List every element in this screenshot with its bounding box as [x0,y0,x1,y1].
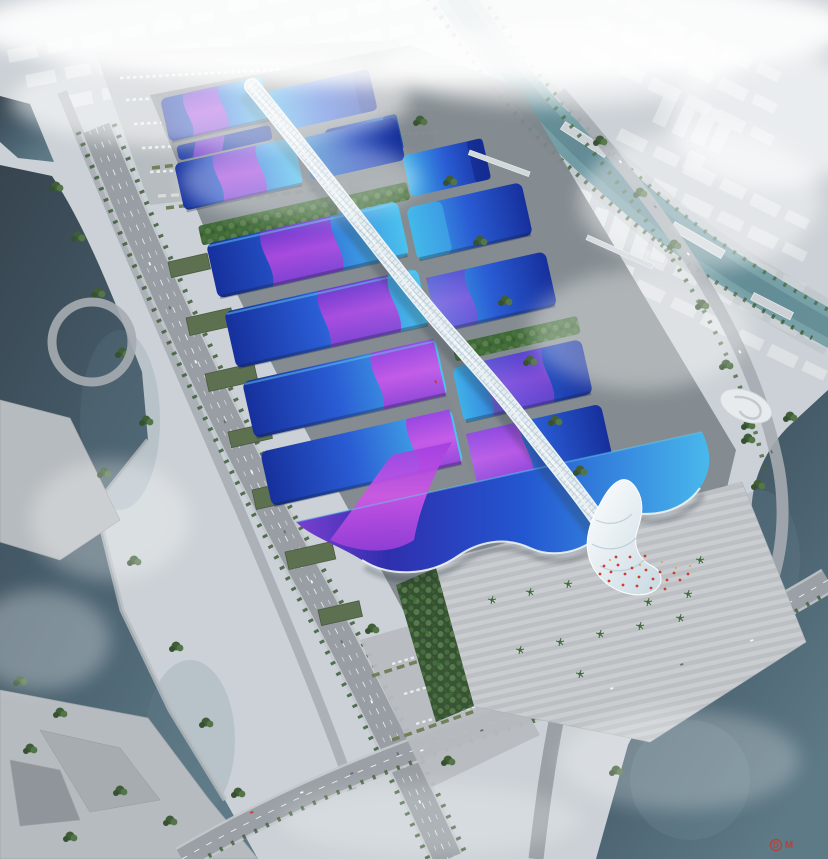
render-canvas: D M [0,0,828,859]
watermark-letter-d: D [773,841,779,850]
aerial-render-image: Riverside exhibition and convention cent… [0,0,828,859]
watermark-letter-m: M [785,840,793,851]
